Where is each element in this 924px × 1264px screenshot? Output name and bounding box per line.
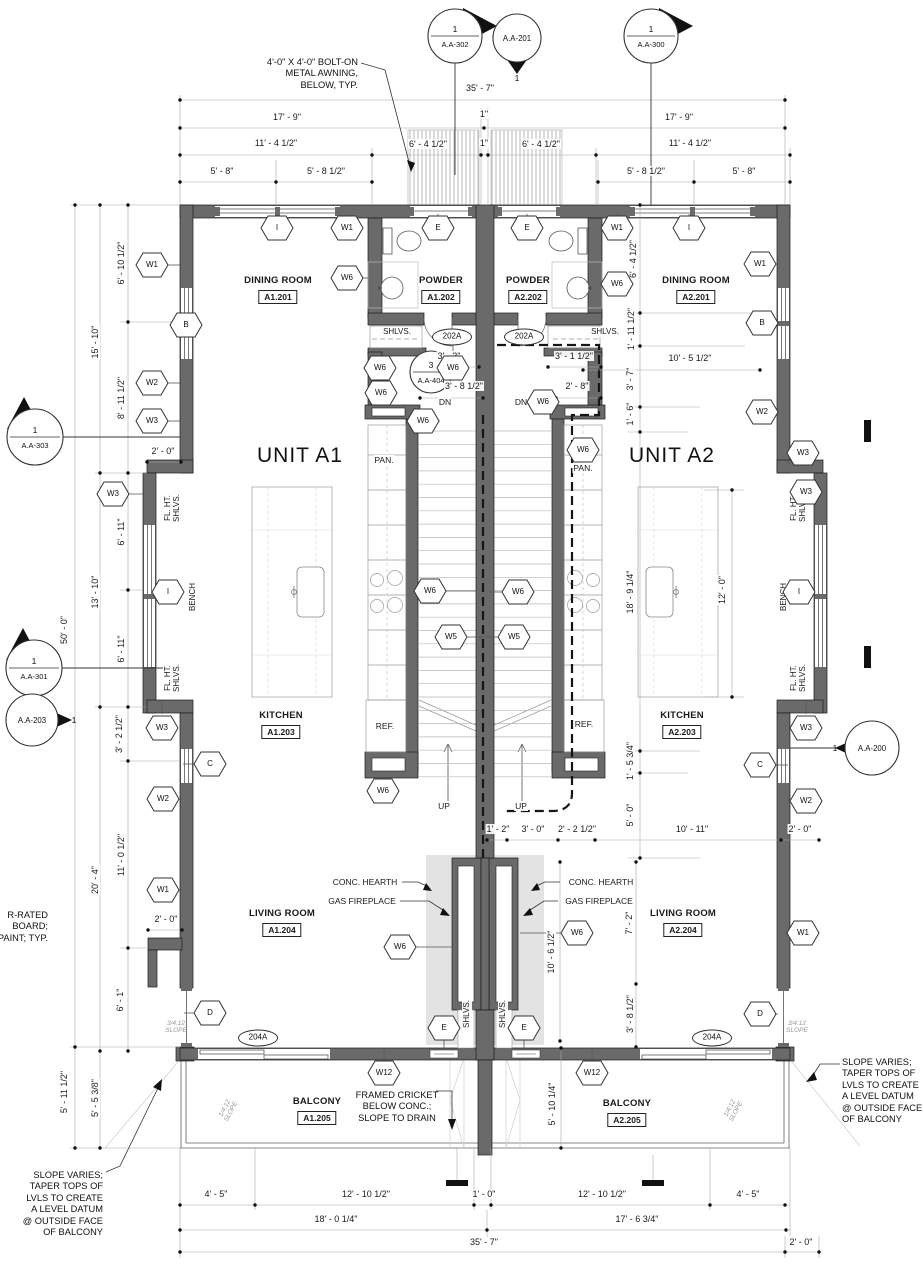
marker-sheet: A.A-404 — [417, 376, 444, 385]
marker-sheet: A.A-200 — [858, 744, 887, 753]
marker-sheet: A.A-201 — [503, 34, 531, 43]
marker-sheet: A.A-300 — [637, 40, 664, 49]
section-marker-a.a-404: 3A.A-404 — [410, 351, 452, 393]
section-marker-a.a-203: A.A-2031 — [6, 694, 77, 746]
section-marker-a.a-301: 1A.A-301 — [6, 628, 62, 696]
marker-number: 1 — [32, 656, 37, 666]
section-marker-a.a-303: 1A.A-303 — [7, 397, 63, 465]
floorplan-drawing: 1A.A-3021A.A-300A.A-20111A.A-3031A.A-301… — [0, 0, 924, 1264]
floor-plan-sheet: 1A.A-3021A.A-300A.A-20111A.A-3031A.A-301… — [0, 0, 924, 1264]
section-marker-a.a-302: 1A.A-302 — [428, 8, 497, 63]
section-marker-a.a-300: 1A.A-300 — [624, 8, 693, 63]
marker-number-outside: 1 — [515, 73, 520, 83]
marker-number: 1 — [453, 24, 458, 34]
marker-number-outside: 1 — [72, 715, 77, 725]
marker-number-outside: 1 — [833, 743, 838, 753]
marker-sheet: A.A-203 — [18, 716, 46, 725]
marker-number: 1 — [649, 24, 654, 34]
marker-sheet: A.A-303 — [21, 441, 48, 450]
section-marker-a.a-201: A.A-2011 — [493, 14, 541, 83]
marker-sheet: A.A-301 — [20, 672, 47, 681]
marker-number: 3 — [429, 360, 434, 370]
marker-number: 1 — [33, 425, 38, 435]
marker-sheet: A.A-302 — [441, 40, 468, 49]
section-marker-a.a-200: A.A-2001 — [833, 721, 899, 775]
unit-a1-geometry — [143, 130, 482, 1148]
